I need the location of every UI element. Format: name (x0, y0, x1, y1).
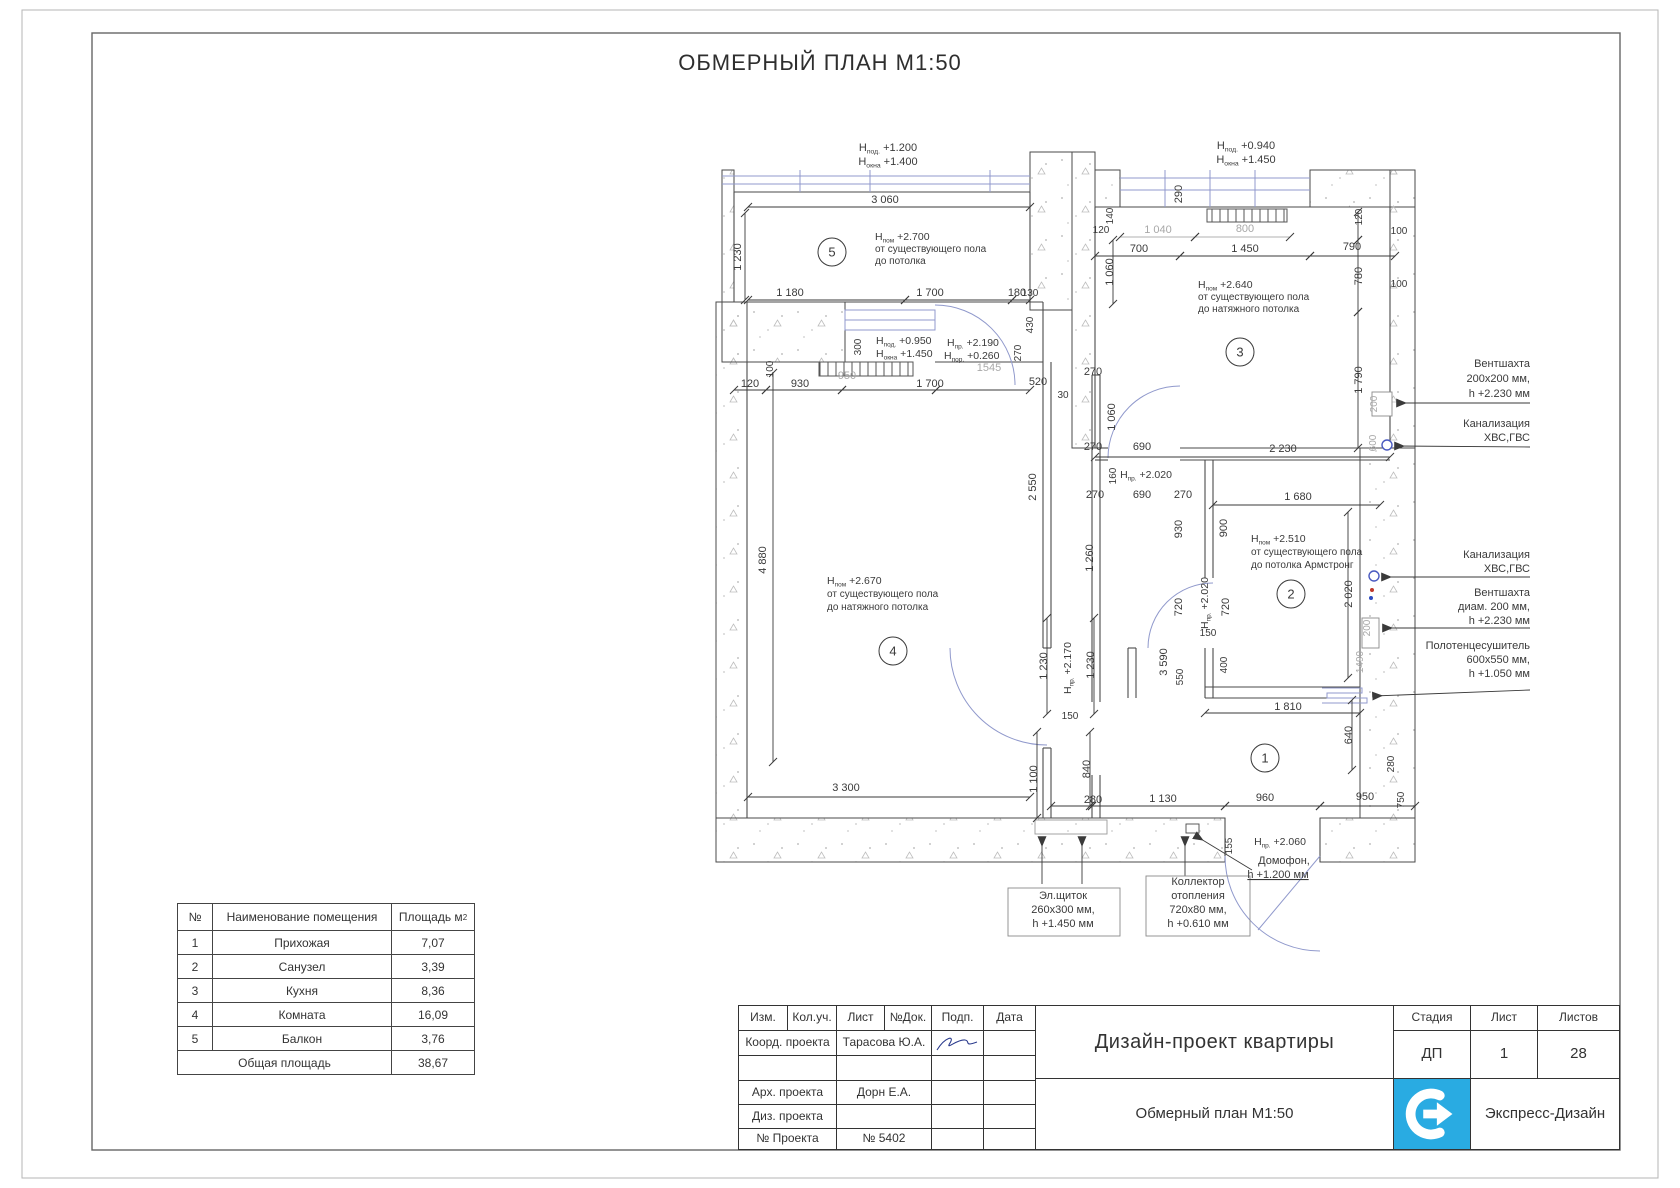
tb-row-value (836, 1055, 932, 1081)
plan-label: 160 (1108, 467, 1119, 484)
plan-label: Коллектор (1171, 876, 1224, 888)
plan-label: 130 (1022, 288, 1039, 299)
plan-label: Нпр. +2.060 (1254, 836, 1306, 850)
plan-label: Домофон, (1258, 855, 1310, 867)
stage-value: ДП (1393, 1030, 1471, 1079)
plan-label: 150 (1200, 628, 1217, 639)
plan-label: 1 180 (776, 287, 804, 299)
cell-area: 16,09 (392, 1003, 474, 1026)
signature (933, 1031, 983, 1055)
plan-label: 3 590 (1158, 648, 1170, 676)
plan-label: 120 (1093, 225, 1110, 236)
plan-label: от существующего пола (875, 244, 987, 255)
table-row: 1Прихожая7,07 (177, 931, 475, 955)
plan-label: h +1.450 мм (1032, 918, 1093, 930)
canalization-point (1382, 440, 1392, 450)
plan-label: 800 (1236, 223, 1254, 235)
plan-label: Нпод. +0.950 (876, 335, 932, 349)
plan-label: 1 700 (916, 287, 944, 299)
tb-signature-cell (931, 1030, 984, 1056)
plan-label: до потолка (875, 256, 926, 267)
plan-label: 520 (1029, 376, 1047, 388)
cell-room-name: Кухня (213, 979, 392, 1002)
tb-row-value (836, 1104, 932, 1129)
cold-water-point (1369, 596, 1373, 600)
plan-label: Нпом +2.640 (1198, 279, 1253, 293)
plan-label: 790 (1343, 241, 1361, 253)
room-number: 3 (1236, 345, 1243, 360)
col-area: Площадь м2 (392, 904, 474, 930)
plan-label: 200 (1369, 395, 1380, 412)
tb-row-value: Дорн Е.А. (836, 1080, 932, 1105)
plan-label: 270 (1174, 489, 1192, 501)
cell-room-name: Балкон (213, 1027, 392, 1050)
plan-label: 140 (1105, 207, 1116, 224)
plan-label: h +2.230 мм (1469, 615, 1530, 627)
plan-label: Канализация (1463, 549, 1530, 561)
plan-label: Вентшахта (1474, 587, 1531, 599)
plan-label: Канализация (1463, 418, 1530, 430)
plan-label: 720х80 мм, (1169, 904, 1226, 916)
plan-label: Нпр. +2.020 (1120, 469, 1172, 483)
table-row: 5Балкон3,76 (177, 1027, 475, 1051)
plan-label: 1 100 (1028, 765, 1040, 793)
tb-row-value: № 5402 (836, 1128, 932, 1150)
cell-room-name: Санузел (213, 955, 392, 978)
project-title: Дизайн-проект квартиры (1035, 1005, 1394, 1079)
drawing-sheet: ОБМЕРНЫЙ ПЛАН М1:50 (0, 0, 1680, 1188)
plan-label: Нпр. +2.170 (1062, 642, 1076, 694)
plan-label: 950 (838, 370, 856, 382)
plan-label: 30 (1057, 390, 1069, 401)
plan-label: Нпод. +0.940 (1217, 140, 1275, 154)
plan-label: 3 300 (832, 782, 860, 794)
plan-label: Нпр. +2.020 (1199, 577, 1213, 629)
tb-col-list: Лист (836, 1005, 885, 1031)
cell-area: 3,39 (392, 955, 474, 978)
plan-label: до натяжного потолка (1198, 304, 1300, 315)
cell-number: 5 (178, 1027, 213, 1050)
plan-label: 750 (1396, 791, 1407, 808)
plan-label: 155 (1224, 837, 1235, 854)
total-label: Общая площадь (178, 1051, 392, 1074)
plan-label: 270 (1084, 441, 1102, 453)
room-number: 4 (889, 644, 896, 659)
plan-label: 100 (1391, 226, 1408, 237)
plan-label: 930 (1173, 520, 1185, 538)
plan-label: 600х550 мм, (1467, 654, 1530, 666)
plan-label: 1 790 (1353, 366, 1365, 394)
table-row: 4Комната16,09 (177, 1003, 475, 1027)
room-number: 2 (1287, 587, 1294, 602)
plan-label: 720 (1220, 598, 1232, 616)
title-block: Изм. Кол.уч. Лист №Док. Подп. Дата Коорд… (738, 1005, 1620, 1150)
plan-label: 2 550 (1027, 473, 1039, 501)
plan-label: 300 (853, 338, 864, 355)
plan-label: от существующего пола (827, 589, 939, 600)
plan-label: Нпр. +2.190 (947, 337, 999, 351)
stage-label: Стадия (1393, 1005, 1471, 1031)
tb-col-podp: Подп. (931, 1005, 984, 1031)
plan-label: 1 040 (1144, 224, 1172, 236)
plan-label: 280 (1084, 794, 1102, 806)
plan-label: 900 (1218, 519, 1230, 537)
plan-label: Эл.щиток (1039, 890, 1087, 902)
plan-label: ХВС,ГВС (1484, 563, 1530, 575)
plan-label: 1 130 (1149, 793, 1177, 805)
plan-label: отопления (1171, 890, 1225, 902)
plan-label: 290 (1173, 185, 1185, 203)
table-total-row: Общая площадь 38,67 (177, 1051, 475, 1075)
cell-area: 7,07 (392, 931, 474, 954)
plan-label: 1 230 (732, 243, 744, 271)
plan-label: 1 060 (1106, 403, 1118, 431)
plan-label: 930 (791, 378, 809, 390)
tb-col-ndok: №Док. (884, 1005, 932, 1031)
plan-label: 3 060 (871, 194, 899, 206)
plan-label: 720 (1173, 598, 1185, 616)
cell-number: 4 (178, 1003, 213, 1026)
plan-label: 400 (1219, 656, 1230, 673)
plan-label: 1 260 (1084, 544, 1096, 572)
plan-label: 270 (1086, 489, 1104, 501)
plan-label: 700 (1130, 243, 1148, 255)
plan-label: 280 (1386, 755, 1397, 772)
plan-label: Нпом +2.700 (875, 231, 930, 245)
sheets-label: Листов (1537, 1005, 1620, 1031)
plan-label: 200 (1362, 619, 1373, 636)
col-room-name: Наименование помещения (213, 904, 392, 930)
tb-row-label: Диз. проекта (738, 1104, 837, 1129)
plan-label: Нокна +1.450 (1216, 154, 1275, 168)
table-body: 1Прихожая7,072Санузел3,393Кухня8,364Комн… (177, 931, 475, 1051)
table-row: 2Санузел3,39 (177, 955, 475, 979)
tb-row-label: Арх. проекта (738, 1080, 837, 1105)
plan-label: 780 (1353, 267, 1365, 285)
cell-area: 3,76 (392, 1027, 474, 1050)
plan-label: 1 810 (1274, 701, 1302, 713)
tb-row-label: Коорд. проекта (738, 1030, 837, 1056)
plan-label: 640 (1343, 726, 1355, 744)
plan-label: 2 230 (1269, 443, 1297, 455)
tb-col-koluch: Кол.уч. (787, 1005, 837, 1031)
plan-label: 150 (1062, 711, 1079, 722)
plan-label: Нокна +1.400 (858, 156, 917, 170)
cell-number: 3 (178, 979, 213, 1002)
room-number: 1 (1261, 751, 1268, 766)
plan-label: 260х300 мм, (1031, 904, 1094, 916)
plan-label: 120 (1354, 208, 1365, 225)
sheet-value: 1 (1470, 1030, 1538, 1079)
table-header-row: № Наименование помещения Площадь м2 (177, 903, 475, 931)
plan-label: 100 (1391, 279, 1408, 290)
plan-label: 100 (765, 360, 776, 377)
plan-label: 270 (1084, 366, 1102, 378)
plan-label: 430 (1025, 316, 1036, 333)
door-arc-room (950, 648, 1047, 745)
plan-label: 1 680 (1284, 491, 1312, 503)
canalization-point (1369, 571, 1379, 581)
plan-label: h +2.230 мм (1469, 388, 1530, 400)
tb-row-value: Тарасова Ю.А. (836, 1030, 932, 1056)
cell-room-name: Комната (213, 1003, 392, 1026)
tb-date-cell (983, 1030, 1036, 1056)
plan-label: 1 450 (1231, 243, 1259, 255)
plan-label: h +1.200 мм (1247, 869, 1308, 881)
plan-label: Нпод. +1.200 (859, 142, 917, 156)
plan-label: до натяжного потолка (827, 602, 929, 613)
plan-label: от существующего пола (1198, 292, 1310, 303)
sheet-name: Обмерный план М1:50 (1035, 1078, 1394, 1150)
logo-arrow-icon (1394, 1078, 1470, 1150)
plan-label: 690 (1133, 441, 1151, 453)
plan-label: 1 060 (1104, 258, 1116, 286)
plan-label: 120 (741, 378, 759, 390)
cell-area: 8,36 (392, 979, 474, 1002)
plan-label: Вентшахта (1474, 358, 1531, 370)
sheet-label: Лист (1470, 1005, 1538, 1031)
plan-label: 1 230 (1038, 652, 1050, 680)
cell-number: 2 (178, 955, 213, 978)
plan-label: Нпом +2.510 (1251, 533, 1306, 547)
tb-row-label: № Проекта (738, 1128, 837, 1150)
plan-label: 1545 (977, 362, 1001, 374)
tb-col-izm: Изм. (738, 1005, 788, 1031)
plan-label: 200х200 мм, (1467, 373, 1530, 385)
plan-label: ХВС,ГВС (1484, 432, 1530, 444)
plan-label: 840 (1081, 760, 1093, 778)
plan-label: Нокна +1.450 (876, 348, 933, 362)
plan-label: Полотенцесушитель (1426, 640, 1531, 652)
page-title: ОБМЕРНЫЙ ПЛАН М1:50 (600, 50, 1040, 76)
plan-label: 550 (1175, 668, 1186, 685)
company-name: Экспресс-Дизайн (1470, 1078, 1620, 1150)
table-row: 3Кухня8,36 (177, 979, 475, 1003)
plan-label: Нпом +2.670 (827, 575, 882, 589)
plan-label: 690 (1133, 489, 1151, 501)
sheets-value: 28 (1537, 1030, 1620, 1079)
tb-col-data: Дата (983, 1005, 1036, 1031)
room-area-table: № Наименование помещения Площадь м2 1При… (177, 903, 475, 1075)
plan-label: 270 (1013, 344, 1024, 361)
plan-label: 4 880 (757, 546, 769, 574)
plan-label: 950 (1356, 791, 1374, 803)
plan-label: h +0.610 мм (1167, 918, 1228, 930)
cell-number: 1 (178, 931, 213, 954)
plan-label: 600 (1368, 434, 1379, 451)
plan-label: от существующего пола (1251, 547, 1363, 558)
plan-label: до потолка Армстронг (1251, 560, 1354, 571)
tb-row-label (738, 1055, 837, 1081)
col-number: № (178, 904, 213, 930)
hot-water-point (1370, 588, 1374, 592)
plan-label: 1 230 (1085, 651, 1097, 679)
plan-label: h +1.050 мм (1469, 668, 1530, 680)
plan-label: диам. 200 мм, (1458, 601, 1530, 613)
plan-label: 2 020 (1343, 580, 1355, 608)
company-logo (1393, 1078, 1471, 1150)
plan-label: 1 700 (916, 378, 944, 390)
room-number: 5 (828, 245, 835, 260)
plan-label: 1490 (1355, 650, 1366, 673)
total-value: 38,67 (392, 1051, 474, 1074)
plan-label: 960 (1256, 792, 1274, 804)
cell-room-name: Прихожая (213, 931, 392, 954)
